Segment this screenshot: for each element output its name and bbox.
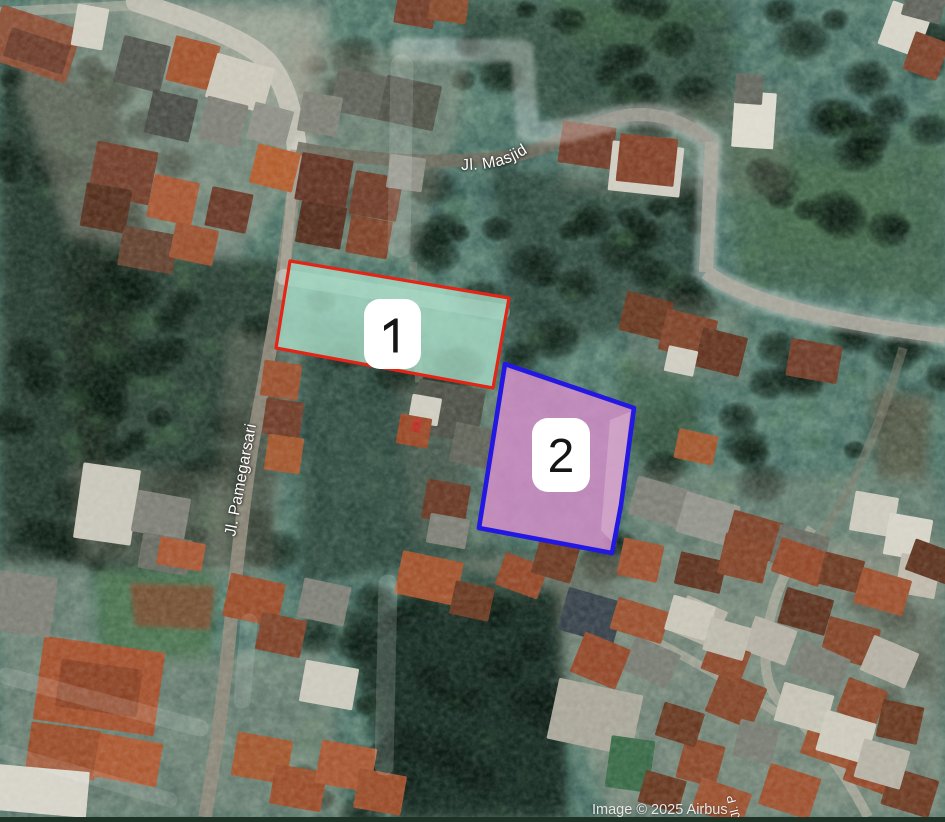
svg-text:2: 2 <box>548 430 575 483</box>
svg-text:Image © 2025 Airbus: Image © 2025 Airbus <box>592 802 728 817</box>
